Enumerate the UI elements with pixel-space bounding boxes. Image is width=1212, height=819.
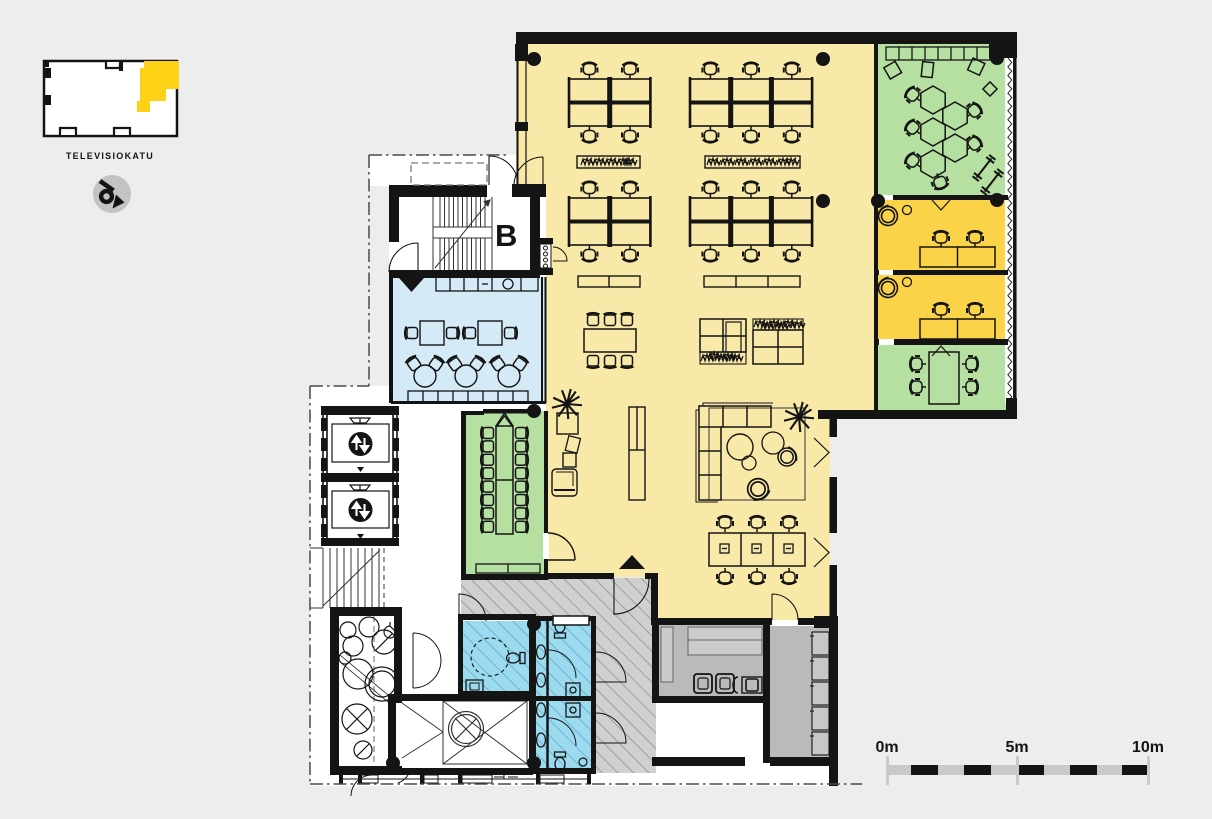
svg-text:5m: 5m xyxy=(1005,739,1028,756)
svg-text:0m: 0m xyxy=(875,739,898,756)
svg-text:TELEVISIOKATU: TELEVISIOKATU xyxy=(66,151,154,161)
svg-text:B: B xyxy=(495,218,517,253)
svg-text:10m: 10m xyxy=(1132,739,1164,756)
